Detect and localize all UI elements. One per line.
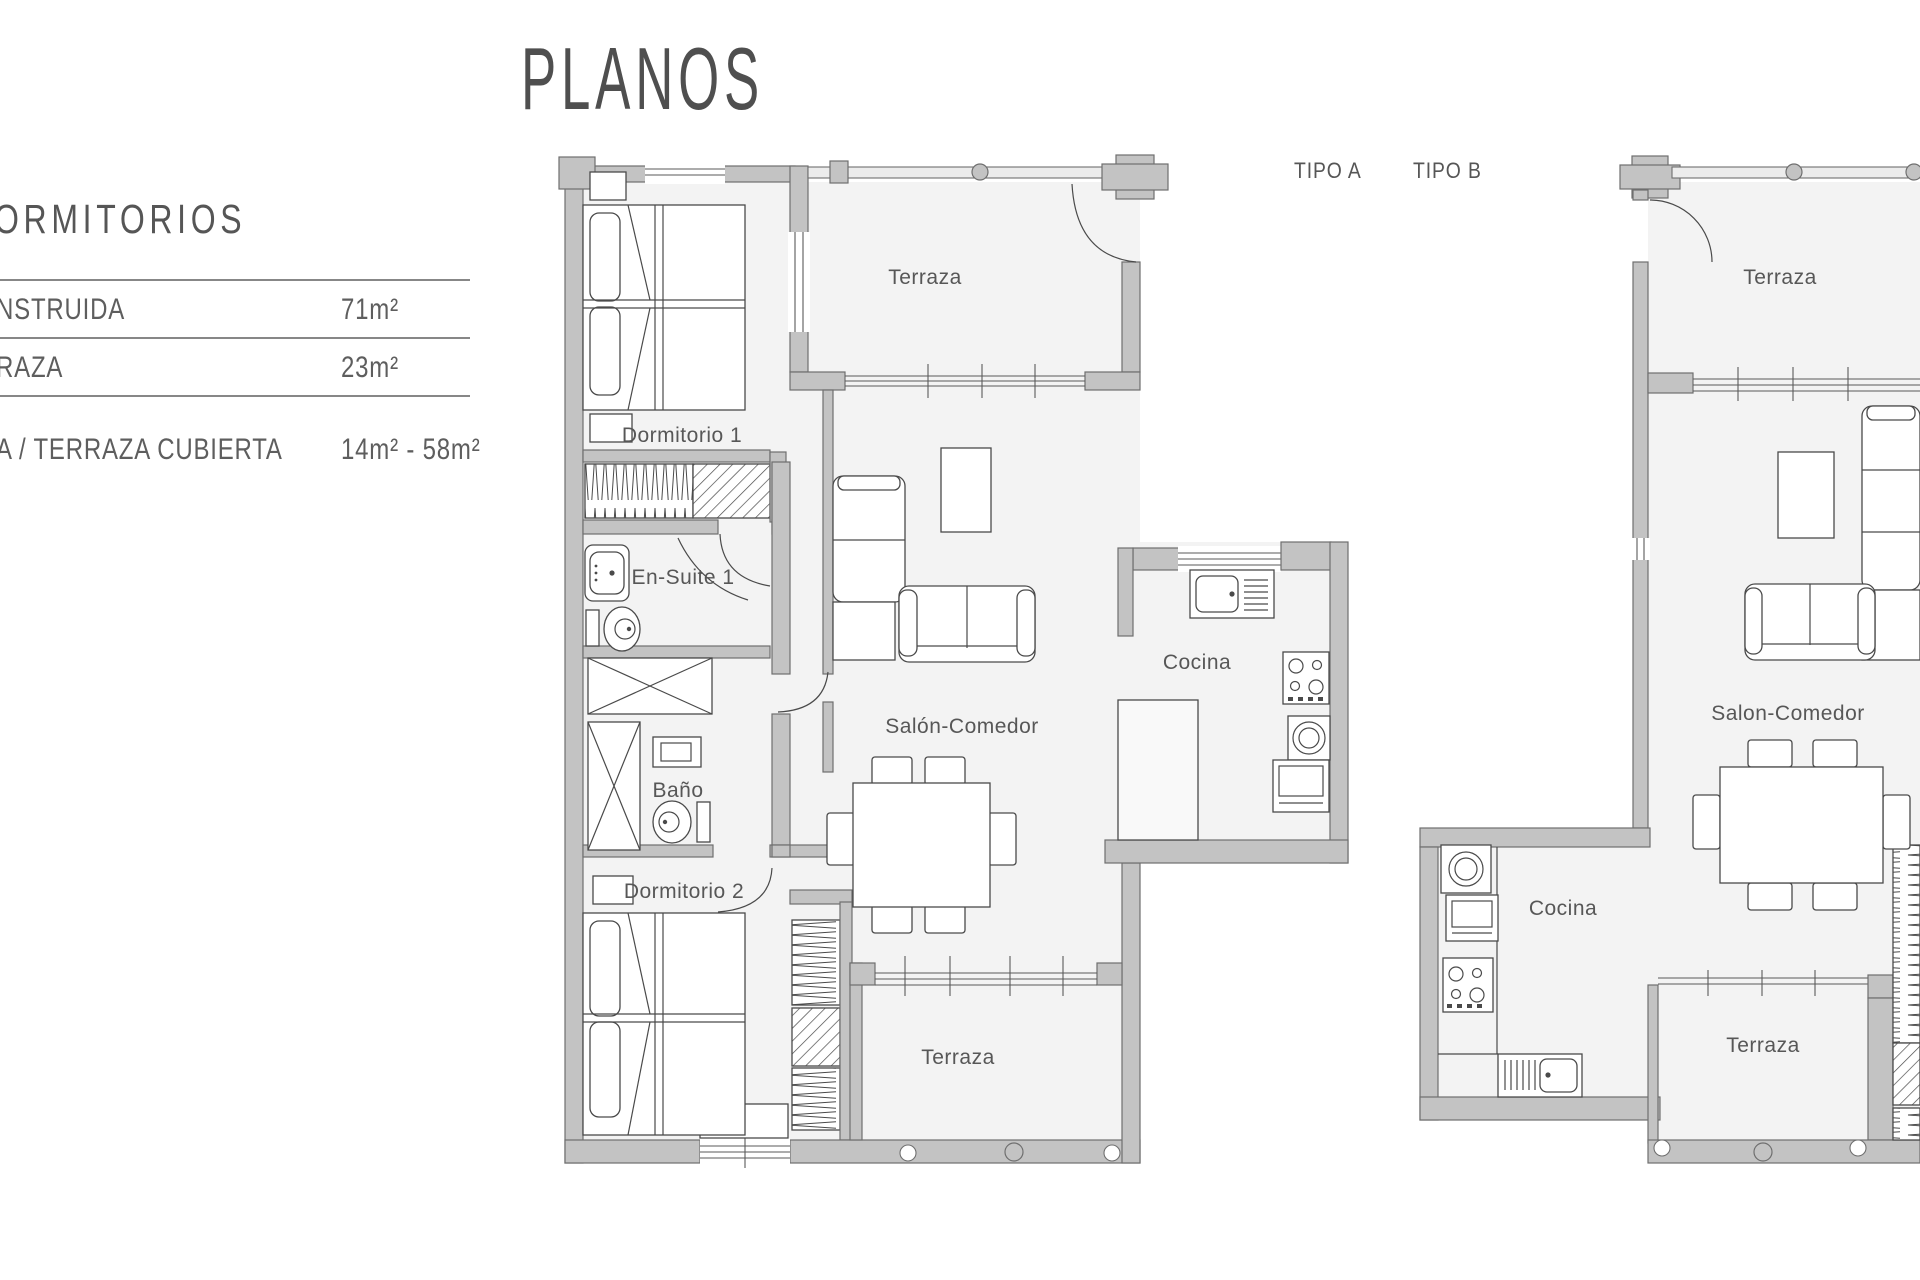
bano-toilet — [653, 801, 710, 843]
bano-shower — [588, 722, 640, 850]
room-label-cocina-b: Cocina — [1529, 897, 1597, 920]
room-label-terraza-top-b: Terraza — [1743, 266, 1817, 289]
wardrobe-hatch — [693, 464, 770, 518]
kitchen-sink — [1498, 1054, 1582, 1097]
coffee-table — [1778, 452, 1834, 538]
wardrobe-hangers — [585, 464, 693, 518]
stove — [1443, 958, 1493, 1012]
floor-plan-a: Terraza Dormitorio 1 En-Suite 1 Salón-Co… — [559, 155, 1348, 1168]
stove — [1283, 652, 1329, 704]
room-label-dormitorio2: Dormitorio 2 — [624, 880, 744, 903]
railing-post — [1005, 1143, 1023, 1161]
wardrobe-hatch — [1893, 1043, 1920, 1105]
floor-plan-b: Terraza Salon-Comedor Cocina Terraza — [1420, 156, 1920, 1163]
room-label-salon-b: Salon-Comedor — [1711, 702, 1865, 725]
railing-post — [1786, 164, 1802, 180]
terrace-railing — [808, 167, 1108, 178]
wardrobe-hatch — [792, 1008, 840, 1066]
ensuite-sink — [585, 545, 629, 601]
bed-dormitorio1 — [583, 172, 745, 442]
coffee-table — [941, 448, 991, 532]
wall — [565, 166, 583, 1163]
room-label-dormitorio1: Dormitorio 1 — [622, 424, 742, 447]
railing-post — [1906, 164, 1920, 180]
room-label-terraza-bottom-a: Terraza — [921, 1046, 995, 1069]
room-label-salon-a: Salón-Comedor — [885, 715, 1039, 738]
dining-set — [827, 757, 1016, 933]
room-label-ensuite: En-Suite 1 — [631, 566, 734, 589]
kitchen-counter — [1118, 700, 1198, 840]
wardrobe-hangers — [1893, 845, 1920, 1043]
oven — [1446, 895, 1498, 941]
kitchen-sink — [1190, 570, 1274, 618]
room-label-bano: Baño — [652, 779, 703, 802]
ensuite-toilet — [586, 607, 640, 651]
room-label-terraza-top-a: Terraza — [888, 266, 962, 289]
bed-dormitorio2 — [583, 876, 745, 1135]
railing-post — [1754, 1143, 1772, 1161]
room-label-cocina-a: Cocina — [1163, 651, 1231, 674]
wardrobe-hangers — [792, 920, 840, 1005]
floor-plans-canvas: Terraza Dormitorio 1 En-Suite 1 Salón-Co… — [0, 0, 1920, 1280]
railing-post — [972, 164, 988, 180]
ensuite-shower — [588, 658, 712, 714]
bano-cabinet — [653, 737, 701, 767]
washing-machine — [1441, 845, 1491, 893]
room-label-terraza-bottom-b: Terraza — [1726, 1034, 1800, 1057]
washing-machine — [1288, 716, 1330, 760]
oven — [1273, 760, 1329, 812]
